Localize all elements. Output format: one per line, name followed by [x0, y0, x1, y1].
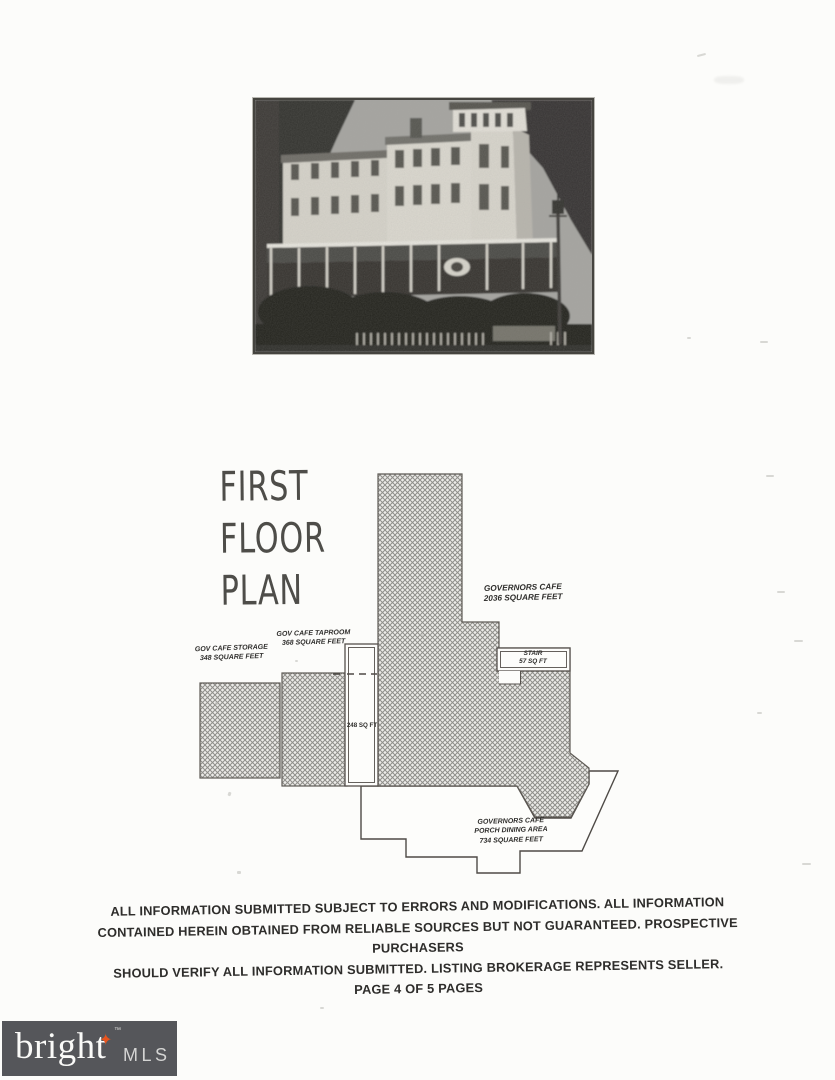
scan-speck	[697, 53, 706, 57]
corridor	[333, 644, 378, 786]
scan-smudge	[714, 76, 744, 84]
scan-speck	[802, 863, 811, 865]
title-line: FLOOR	[220, 512, 326, 565]
scan-speck	[777, 591, 785, 593]
photo-grain	[255, 100, 592, 352]
title-line: PLAN	[220, 564, 326, 617]
property-photo	[253, 98, 594, 354]
mls-wordmark: MLS	[123, 1045, 171, 1066]
stair-notch	[499, 671, 521, 684]
room-storage	[200, 683, 280, 778]
scan-speck	[766, 475, 774, 477]
title-line: FIRST	[219, 460, 325, 513]
star-icon: ✦	[99, 1030, 112, 1050]
scan-speck	[687, 337, 691, 339]
scan-speck	[295, 660, 298, 662]
scan-speck	[237, 871, 241, 874]
label-storage: GOV CAFE STORAGE 348 SQUARE FEET	[184, 642, 280, 664]
scan-speck	[320, 1007, 324, 1009]
brightmls-wordmark: bright	[15, 1025, 106, 1068]
scanned-listing-page: { "title": { "lines": ["FIRST", "FLOOR",…	[0, 0, 835, 1080]
scan-speck	[227, 792, 231, 797]
label-governors-cafe: GOVERNORS CAFE 2036 SQUARE FEET	[464, 581, 582, 603]
room-taproom	[282, 673, 347, 786]
scan-speck	[215, 702, 218, 705]
disclaimer-text: ALL INFORMATION SUBMITTED SUBJECT TO ERR…	[57, 891, 779, 1005]
page-title: FIRST FLOOR PLAN	[219, 459, 364, 616]
scan-speck	[757, 712, 762, 714]
scan-speck	[420, 633, 424, 637]
label-porch: GOVERNORS CAFE PORCH DINING AREA 734 SQU…	[447, 815, 576, 847]
label-corridor: 248 SQ FT	[342, 722, 382, 729]
scan-speck	[760, 341, 768, 343]
trademark-symbol: ™	[114, 1027, 121, 1034]
room-governors-cafe	[378, 474, 589, 817]
brightmls-logo: bright ✦ ™ MLS	[2, 1021, 177, 1076]
label-taproom: GOV CAFE TAPROOM 368 SQUARE FEET	[266, 628, 361, 649]
scan-speck	[794, 640, 803, 642]
label-stair: STAIR 57 SQ FT	[499, 650, 567, 666]
